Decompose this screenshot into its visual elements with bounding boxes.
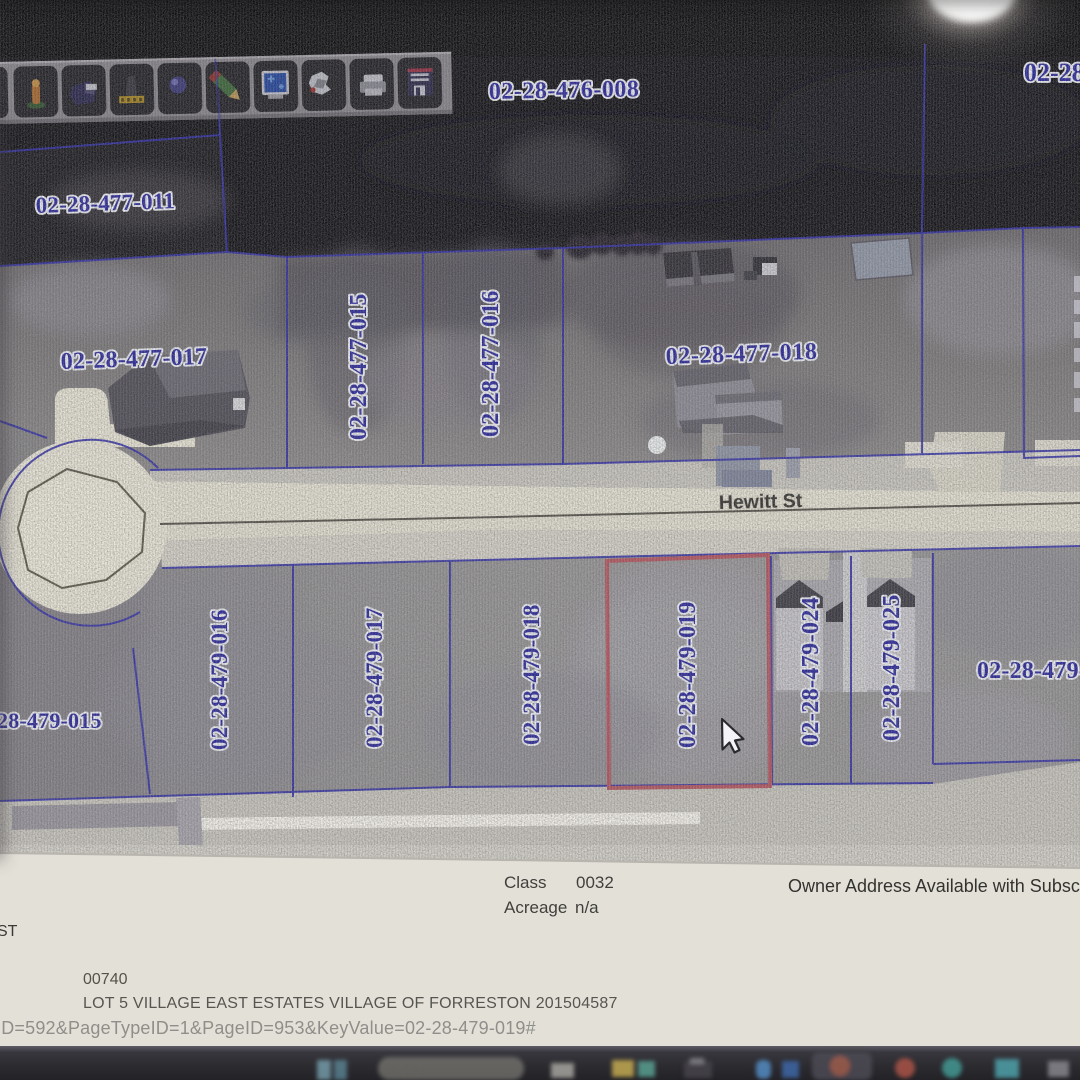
- svg-text:Class: Class: [504, 873, 547, 892]
- svg-text:LOT 5 VILLAGE EAST ESTATES VIL: LOT 5 VILLAGE EAST ESTATES VILLAGE OF FO…: [83, 995, 618, 1012]
- svg-text:ST: ST: [0, 923, 18, 940]
- svg-text:0032: 0032: [576, 873, 614, 892]
- svg-text:00740: 00740: [83, 971, 128, 988]
- svg-text:Acreage: Acreage: [504, 898, 567, 917]
- svg-text:ID=592&PageTypeID=1&PageID=953: ID=592&PageTypeID=1&PageID=953&KeyValue=…: [0, 1018, 536, 1038]
- svg-text:n/a: n/a: [575, 898, 599, 917]
- svg-text:Owner Address Available with S: Owner Address Available with Subsc: [788, 876, 1080, 896]
